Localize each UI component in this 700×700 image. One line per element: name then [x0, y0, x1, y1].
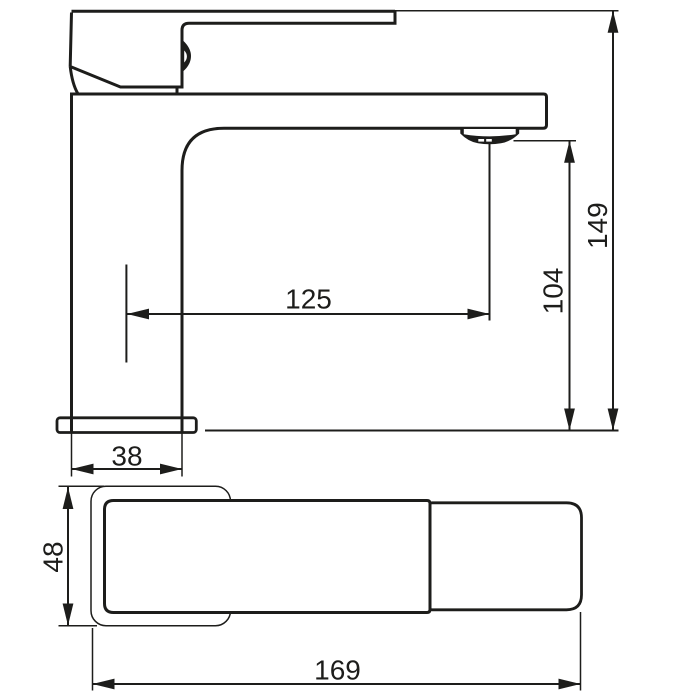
svg-text:48: 48 — [37, 541, 68, 572]
svg-text:169: 169 — [314, 655, 361, 686]
svg-text:149: 149 — [582, 202, 613, 249]
svg-text:38: 38 — [111, 440, 142, 471]
svg-text:125: 125 — [285, 284, 332, 315]
svg-text:104: 104 — [538, 268, 569, 315]
